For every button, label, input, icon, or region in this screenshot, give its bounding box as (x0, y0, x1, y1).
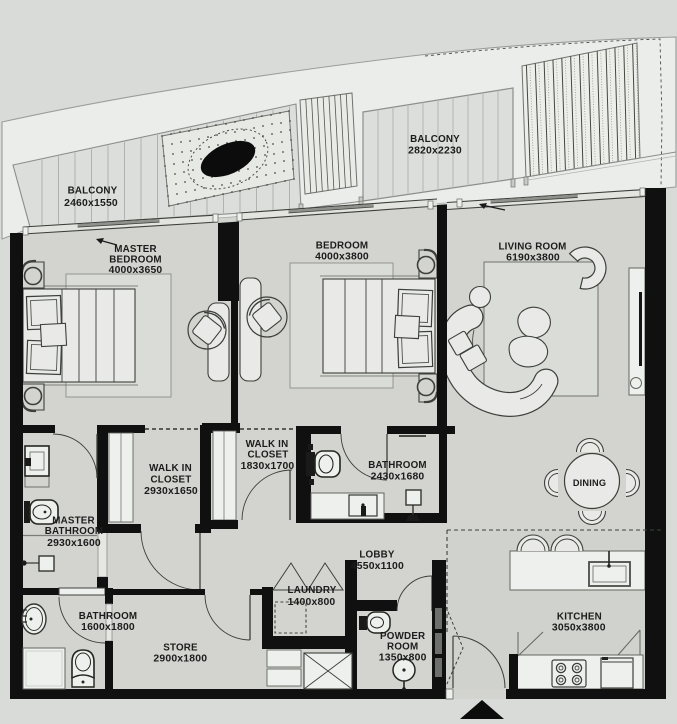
svg-text:LOBBY: LOBBY (359, 549, 395, 560)
svg-text:LIVING ROOM: LIVING ROOM (498, 242, 566, 253)
svg-text:2460x1550: 2460x1550 (64, 198, 118, 209)
svg-text:2930x1650: 2930x1650 (144, 486, 198, 497)
svg-text:2930x1600: 2930x1600 (47, 538, 101, 549)
svg-text:2900x1800: 2900x1800 (153, 654, 207, 665)
svg-text:2430x1680: 2430x1680 (371, 472, 425, 483)
svg-text:BALCONY: BALCONY (68, 186, 118, 197)
svg-text:1350x800: 1350x800 (379, 652, 427, 663)
svg-text:1400x800: 1400x800 (288, 597, 336, 608)
svg-text:WALK IN: WALK IN (246, 439, 289, 450)
svg-text:DINING: DINING (573, 478, 606, 488)
svg-text:BATHROOM: BATHROOM (79, 611, 138, 622)
svg-text:3050x3800: 3050x3800 (552, 623, 606, 634)
svg-text:2820x2230: 2820x2230 (408, 146, 462, 157)
svg-text:BEDROOM: BEDROOM (109, 255, 162, 266)
svg-text:CLOSET: CLOSET (248, 450, 289, 461)
svg-text:MASTER: MASTER (114, 244, 157, 255)
svg-text:STORE: STORE (163, 643, 198, 654)
svg-text:ROOM: ROOM (387, 641, 418, 652)
svg-text:BATHROOM: BATHROOM (368, 460, 427, 471)
svg-text:1600x1800: 1600x1800 (81, 622, 135, 633)
svg-text:KITCHEN: KITCHEN (557, 611, 602, 622)
svg-text:WALK IN: WALK IN (149, 463, 192, 474)
svg-text:4550x1100: 4550x1100 (351, 561, 404, 572)
svg-text:4000x3800: 4000x3800 (315, 252, 369, 263)
svg-text:BEDROOM: BEDROOM (316, 241, 369, 252)
svg-text:MASTER: MASTER (52, 516, 95, 527)
svg-text:1830x1700: 1830x1700 (241, 461, 295, 472)
svg-text:BALCONY: BALCONY (410, 134, 460, 145)
svg-text:CLOSET: CLOSET (151, 475, 192, 486)
svg-text:POWDER: POWDER (380, 631, 425, 642)
svg-text:LAUNDRY: LAUNDRY (288, 585, 337, 596)
svg-text:6190x3800: 6190x3800 (506, 253, 560, 264)
svg-text:4000x3650: 4000x3650 (109, 265, 163, 276)
svg-text:BATHROOM: BATHROOM (45, 526, 104, 537)
